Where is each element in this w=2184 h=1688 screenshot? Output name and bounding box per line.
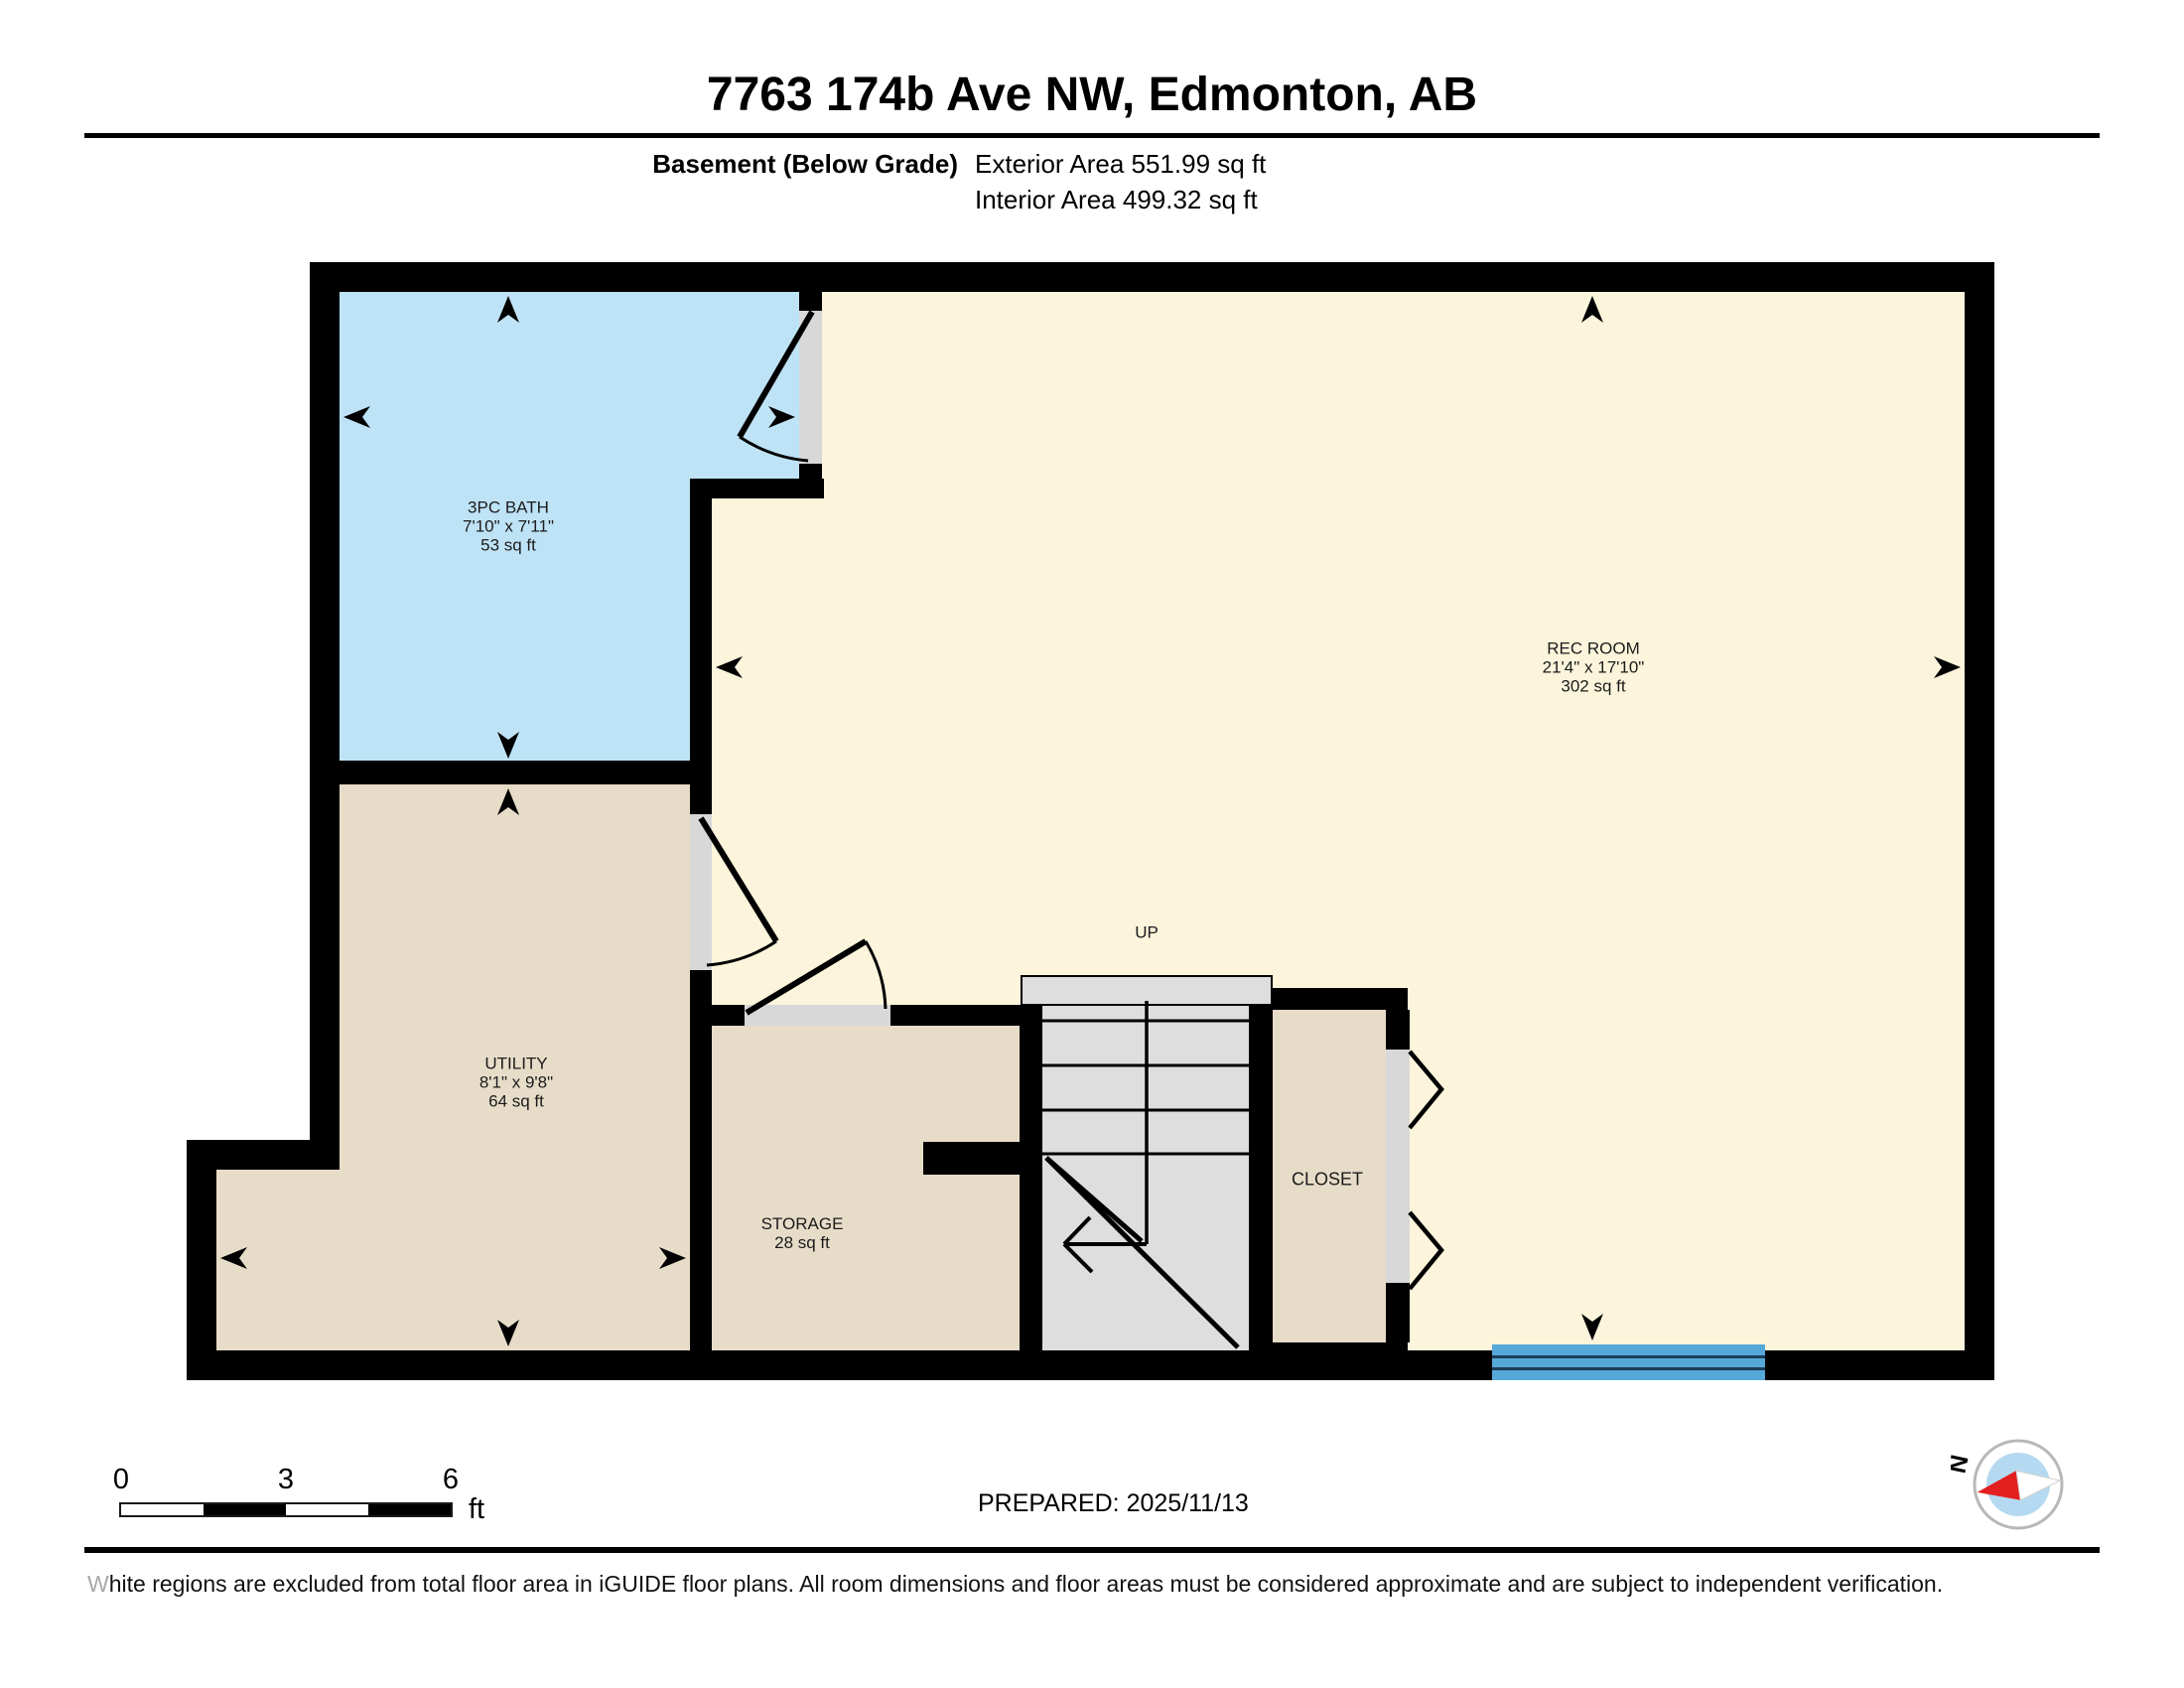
storage-name: STORAGE: [761, 1214, 844, 1233]
stairs-up-label: UP: [1135, 923, 1159, 942]
floor-plan-annotations: [0, 0, 2184, 1688]
compass-icon: N: [1951, 1419, 2082, 1550]
dimension-arrow: [497, 732, 519, 759]
dimension-arrow: [1934, 656, 1961, 678]
disclaimer-lead-letter: W: [87, 1571, 109, 1597]
bath-label: 3PC BATH 7'10" x 7'11" 53 sq ft: [463, 498, 554, 555]
footer-divider: [84, 1547, 2100, 1553]
dimension-arrow: [768, 406, 795, 428]
scale-tick-0: 0: [113, 1464, 129, 1496]
utility-sqft: 64 sq ft: [479, 1092, 553, 1111]
compass-north-label: N: [1951, 1453, 1975, 1476]
dimension-arrow: [497, 296, 519, 323]
bath-name: 3PC BATH: [463, 498, 554, 517]
utility-label: UTILITY 8'1" x 9'8" 64 sq ft: [479, 1055, 553, 1111]
utility-door-swing: [701, 818, 776, 965]
dimension-arrow: [1581, 1314, 1603, 1340]
dimension-arrow: [659, 1247, 686, 1269]
scale-bar: [119, 1502, 453, 1517]
dimension-arrow: [1581, 296, 1603, 323]
scale-tick-6: 6: [443, 1464, 459, 1496]
rec-room-name: REC ROOM: [1543, 639, 1645, 658]
bath-door-swing: [740, 312, 812, 461]
dimension-arrow: [497, 1320, 519, 1346]
rec-room-sqft: 302 sq ft: [1543, 677, 1645, 696]
storage-label: STORAGE 28 sq ft: [761, 1214, 844, 1252]
dimension-arrow: [716, 656, 743, 678]
prepared-date: PREPARED: 2025/11/13: [978, 1489, 1249, 1518]
storage-door-swing: [747, 941, 886, 1013]
scale-bar-segment: [286, 1504, 368, 1515]
dimension-arrow: [497, 788, 519, 815]
rec-room-label: REC ROOM 21'4" x 17'10" 302 sq ft: [1543, 639, 1645, 696]
closet-bifold-icon: [1410, 1052, 1441, 1289]
utility-name: UTILITY: [479, 1055, 553, 1073]
closet-label: CLOSET: [1292, 1171, 1363, 1190]
disclaimer-text: White regions are excluded from total fl…: [87, 1571, 1943, 1598]
scale-tick-3: 3: [278, 1464, 294, 1496]
dimension-arrow: [220, 1247, 247, 1269]
utility-dims: 8'1" x 9'8": [479, 1073, 553, 1092]
floor-plan-page: 7763 174b Ave NW, Edmonton, AB Basement …: [0, 0, 2184, 1688]
bath-sqft: 53 sq ft: [463, 536, 554, 555]
scale-unit-label: ft: [469, 1493, 484, 1526]
stair-treads: [1042, 1001, 1249, 1244]
storage-sqft: 28 sq ft: [761, 1233, 844, 1252]
dimension-arrows: [220, 296, 1961, 1346]
scale-bar-segment: [368, 1504, 451, 1515]
dimension-arrow: [343, 406, 370, 428]
bath-dims: 7'10" x 7'11": [463, 517, 554, 536]
scale-bar-segment: [204, 1504, 286, 1515]
stairs-up-arrow: [1046, 1158, 1238, 1347]
rec-room-dims: 21'4" x 17'10": [1543, 658, 1645, 677]
scale-bar-segment: [121, 1504, 204, 1515]
disclaimer-body: hite regions are excluded from total flo…: [109, 1571, 1943, 1597]
